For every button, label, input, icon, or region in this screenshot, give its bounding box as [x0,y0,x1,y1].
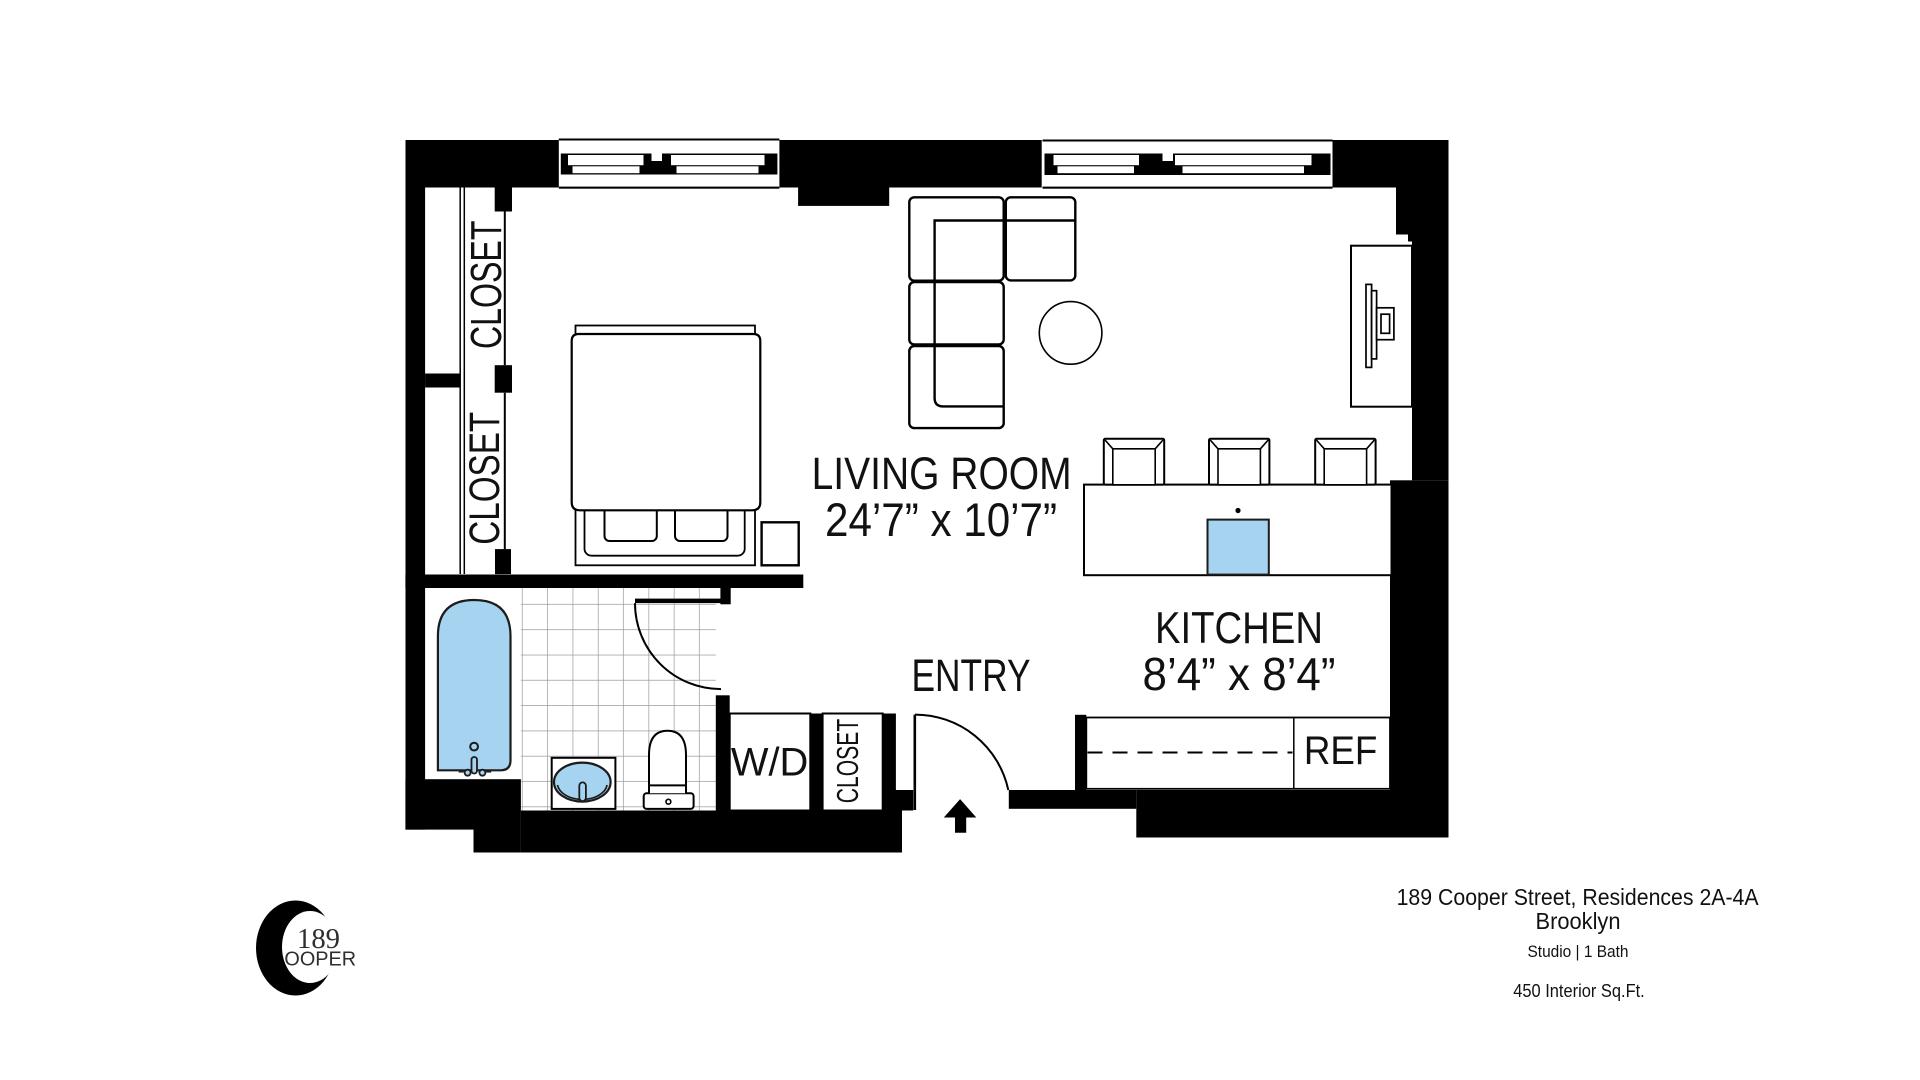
svg-text:CLOSET: CLOSET [462,221,511,350]
svg-text:189 Cooper Street, Residences: 189 Cooper Street, Residences 2A-4A [1397,884,1759,910]
svg-text:LIVING ROOM: LIVING ROOM [812,448,1072,499]
svg-text:REF: REF [1304,729,1378,773]
svg-text:ENTRY: ENTRY [912,650,1031,701]
svg-text:CLOSET: CLOSET [830,719,865,804]
svg-text:CLOSET: CLOSET [461,412,509,545]
svg-text:Brooklyn: Brooklyn [1536,908,1621,934]
svg-text:KITCHEN: KITCHEN [1155,604,1323,653]
svg-text:W/D: W/D [731,740,809,784]
svg-text:OOPER: OOPER [284,949,356,971]
svg-text:Studio | 1 Bath: Studio | 1 Bath [1528,943,1629,961]
svg-text:8’4” x 8’4”: 8’4” x 8’4” [1143,648,1336,700]
svg-text:24’7” x 10’7”: 24’7” x 10’7” [825,494,1057,547]
svg-text:450 Interior Sq.Ft.: 450 Interior Sq.Ft. [1513,981,1645,1001]
